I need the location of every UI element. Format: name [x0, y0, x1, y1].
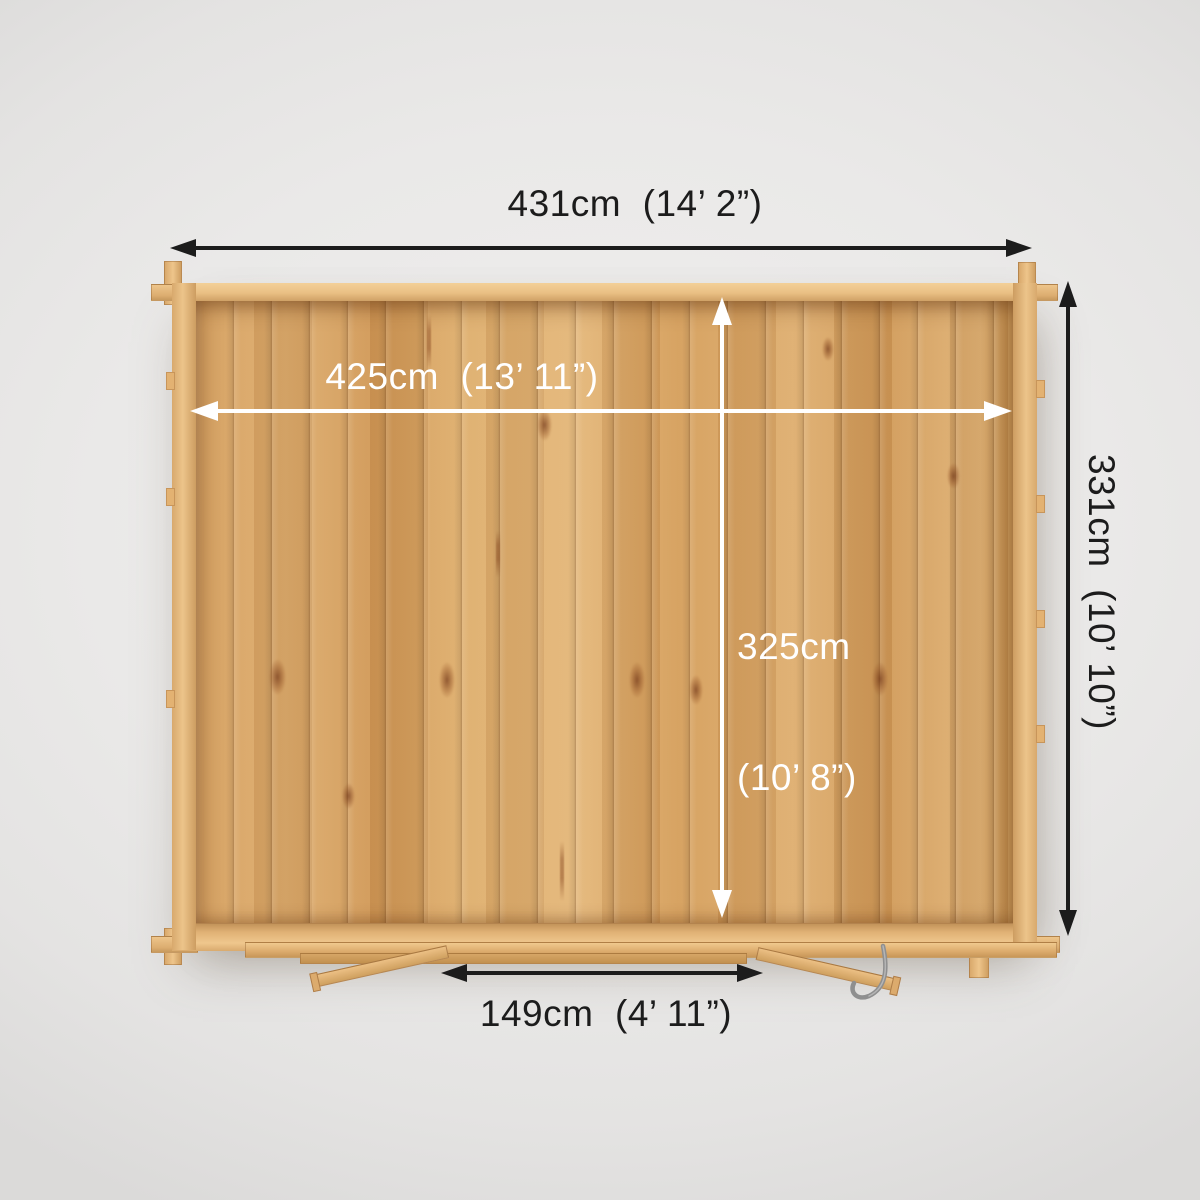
arrowhead-left-icon	[441, 964, 467, 982]
outer-depth-dimension-line	[1066, 306, 1070, 914]
metal-hook-icon	[845, 938, 905, 1006]
cabin-floor	[196, 301, 1013, 923]
inner-width-dimension-line	[216, 409, 986, 413]
log-joint-tab	[166, 690, 175, 708]
cabin-wall-right	[1013, 283, 1037, 950]
arrowhead-left-icon	[170, 239, 196, 257]
log-joint-tab	[1036, 610, 1045, 628]
wood-knot	[269, 659, 286, 695]
cabin-top-view	[172, 283, 1037, 950]
wood-knot	[629, 662, 645, 698]
log-joint-tab	[166, 488, 175, 506]
arrowhead-down-icon	[712, 890, 732, 918]
log-joint-tab	[1036, 725, 1045, 743]
outer-width-dimension-line	[190, 246, 1006, 250]
wood-knot	[689, 675, 703, 705]
wood-knot	[947, 463, 960, 489]
wood-grain-streak	[560, 841, 564, 901]
inner-depth-ft: (10’ 8”)	[737, 756, 857, 800]
arrowhead-right-icon	[984, 401, 1012, 421]
wood-knot	[342, 783, 355, 809]
cabin-wall-left	[172, 283, 196, 950]
inner-depth-dimension-label: 325cm (10’ 8”)	[737, 538, 857, 887]
door-width-dimension-label: 149cm (4’ 11”)	[480, 992, 732, 1036]
arrowhead-down-icon	[1059, 910, 1077, 936]
outer-depth-dimension-label: 331cm (10’ 10”)	[1079, 454, 1123, 730]
arrowhead-right-icon	[737, 964, 763, 982]
cabin-wall-top	[172, 283, 1037, 302]
wood-knot	[439, 662, 455, 698]
log-joint-tab	[1036, 380, 1045, 398]
door-width-dimension-line	[466, 971, 738, 975]
arrowhead-up-icon	[712, 297, 732, 325]
wood-knot	[822, 337, 834, 361]
arrowhead-right-icon	[1006, 239, 1032, 257]
wood-knot	[872, 662, 888, 696]
log-joint-tab	[166, 372, 175, 390]
inner-width-dimension-label: 425cm (13’ 11”)	[325, 355, 598, 399]
inner-depth-cm: 325cm	[737, 625, 857, 669]
outer-width-dimension-label: 431cm (14’ 2”)	[508, 182, 763, 226]
inner-depth-dimension-line	[720, 322, 724, 894]
arrowhead-left-icon	[190, 401, 218, 421]
arrowhead-up-icon	[1059, 281, 1077, 307]
backdrop: 431cm (14’ 2”) 331cm (10’ 10”) 425cm (13…	[0, 0, 1200, 1200]
log-joint-tab	[1036, 495, 1045, 513]
wood-knot	[537, 409, 552, 441]
wood-grain-streak	[496, 531, 500, 577]
door-board-end-cap	[309, 972, 321, 992]
